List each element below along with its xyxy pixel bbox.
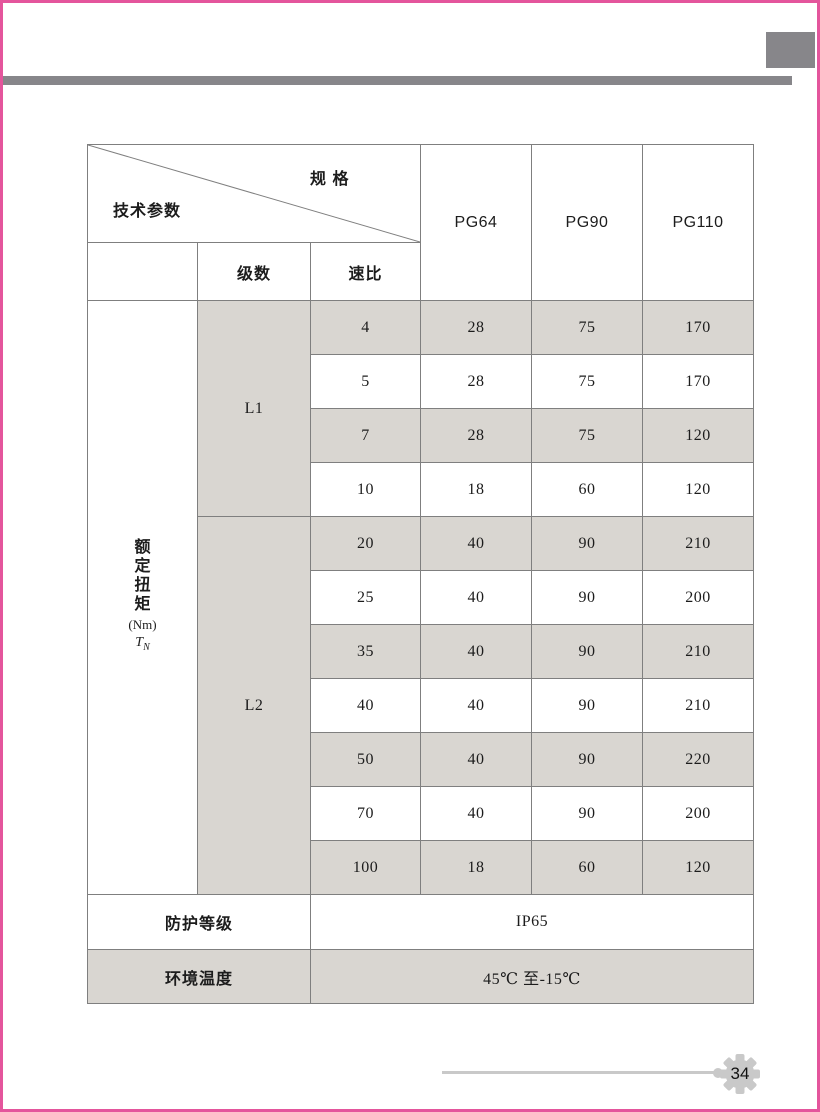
corner-tab-block	[766, 32, 815, 68]
torque-label-stack: 额定扭矩(Nm)TN	[88, 538, 197, 657]
value-cell: 210	[643, 517, 754, 571]
diagonal-header-cell: 规 格 技术参数	[88, 145, 421, 243]
spec-axis-label: 规 格	[310, 165, 349, 189]
value-cell: 120	[643, 463, 754, 517]
spec-table: 规 格 技术参数 PG64 PG90 PG110 级数 速比 额定扭矩(Nm)T…	[87, 144, 754, 1004]
ratio-cell: 20	[311, 517, 421, 571]
footer-value-cell: IP65	[311, 895, 754, 950]
column-header-pg64: PG64	[421, 145, 532, 301]
footer-value-cell: 45℃ 至-15℃	[311, 950, 754, 1004]
torque-char: 扭	[134, 576, 150, 595]
page-number-badge: 34	[719, 1053, 761, 1095]
table-header-row-1: 规 格 技术参数 PG64 PG90 PG110	[88, 145, 754, 243]
value-cell: 200	[643, 571, 754, 625]
ratio-cell: 10	[311, 463, 421, 517]
torque-char: 矩	[134, 595, 150, 614]
ratio-cell: 40	[311, 679, 421, 733]
params-axis-label: 技术参数	[113, 197, 181, 221]
value-cell: 210	[643, 625, 754, 679]
value-cell: 90	[532, 679, 643, 733]
ratio-cell: 100	[311, 841, 421, 895]
ratio-cell: 35	[311, 625, 421, 679]
value-cell: 120	[643, 409, 754, 463]
value-cell: 40	[421, 517, 532, 571]
value-cell: 210	[643, 679, 754, 733]
value-cell: 28	[421, 355, 532, 409]
ratio-cell: 50	[311, 733, 421, 787]
table-footer-row: 环境温度45℃ 至-15℃	[88, 950, 754, 1004]
value-cell: 28	[421, 301, 532, 355]
value-cell: 90	[532, 625, 643, 679]
value-cell: 60	[532, 841, 643, 895]
value-cell: 75	[532, 301, 643, 355]
torque-label-cell: 额定扭矩(Nm)TN	[88, 301, 198, 895]
value-cell: 40	[421, 679, 532, 733]
table-footer-row: 防护等级IP65	[88, 895, 754, 950]
value-cell: 120	[643, 841, 754, 895]
value-cell: 90	[532, 787, 643, 841]
value-cell: 75	[532, 355, 643, 409]
value-cell: 220	[643, 733, 754, 787]
empty-header-cell	[88, 243, 198, 301]
value-cell: 90	[532, 571, 643, 625]
ratio-cell: 7	[311, 409, 421, 463]
ratio-cell: 5	[311, 355, 421, 409]
footer-rule-line	[442, 1071, 716, 1074]
group-label-cell: L1	[198, 301, 311, 517]
footer-label-cell: 环境温度	[88, 950, 311, 1004]
value-cell: 90	[532, 733, 643, 787]
value-cell: 28	[421, 409, 532, 463]
value-cell: 40	[421, 787, 532, 841]
ratio-header-cell: 速比	[311, 243, 421, 301]
value-cell: 170	[643, 301, 754, 355]
torque-symbol-subscript: N	[143, 642, 150, 653]
value-cell: 170	[643, 355, 754, 409]
value-cell: 75	[532, 409, 643, 463]
value-cell: 90	[532, 517, 643, 571]
footer-label-cell: 防护等级	[88, 895, 311, 950]
value-cell: 18	[421, 841, 532, 895]
torque-char: 定	[134, 557, 150, 576]
diagonal-line	[88, 145, 420, 242]
torque-unit: (Nm)	[128, 616, 156, 634]
value-cell: 40	[421, 571, 532, 625]
value-cell: 18	[421, 463, 532, 517]
torque-char: 额	[134, 538, 150, 557]
header-rule-bar	[3, 76, 792, 85]
ratio-cell: 70	[311, 787, 421, 841]
value-cell: 40	[421, 625, 532, 679]
table-row: 额定扭矩(Nm)TNL142875170	[88, 301, 754, 355]
value-cell: 200	[643, 787, 754, 841]
group-label-cell: L2	[198, 517, 311, 895]
column-header-pg110: PG110	[643, 145, 754, 301]
torque-symbol-letter: T	[135, 635, 143, 650]
column-header-pg90: PG90	[532, 145, 643, 301]
ratio-cell: 4	[311, 301, 421, 355]
value-cell: 60	[532, 463, 643, 517]
page-number: 34	[719, 1053, 761, 1095]
spec-table-body: 规 格 技术参数 PG64 PG90 PG110 级数 速比 额定扭矩(Nm)T…	[88, 145, 754, 1004]
ratio-cell: 25	[311, 571, 421, 625]
value-cell: 40	[421, 733, 532, 787]
torque-symbol: TN	[135, 634, 149, 657]
stage-header-cell: 级数	[198, 243, 311, 301]
